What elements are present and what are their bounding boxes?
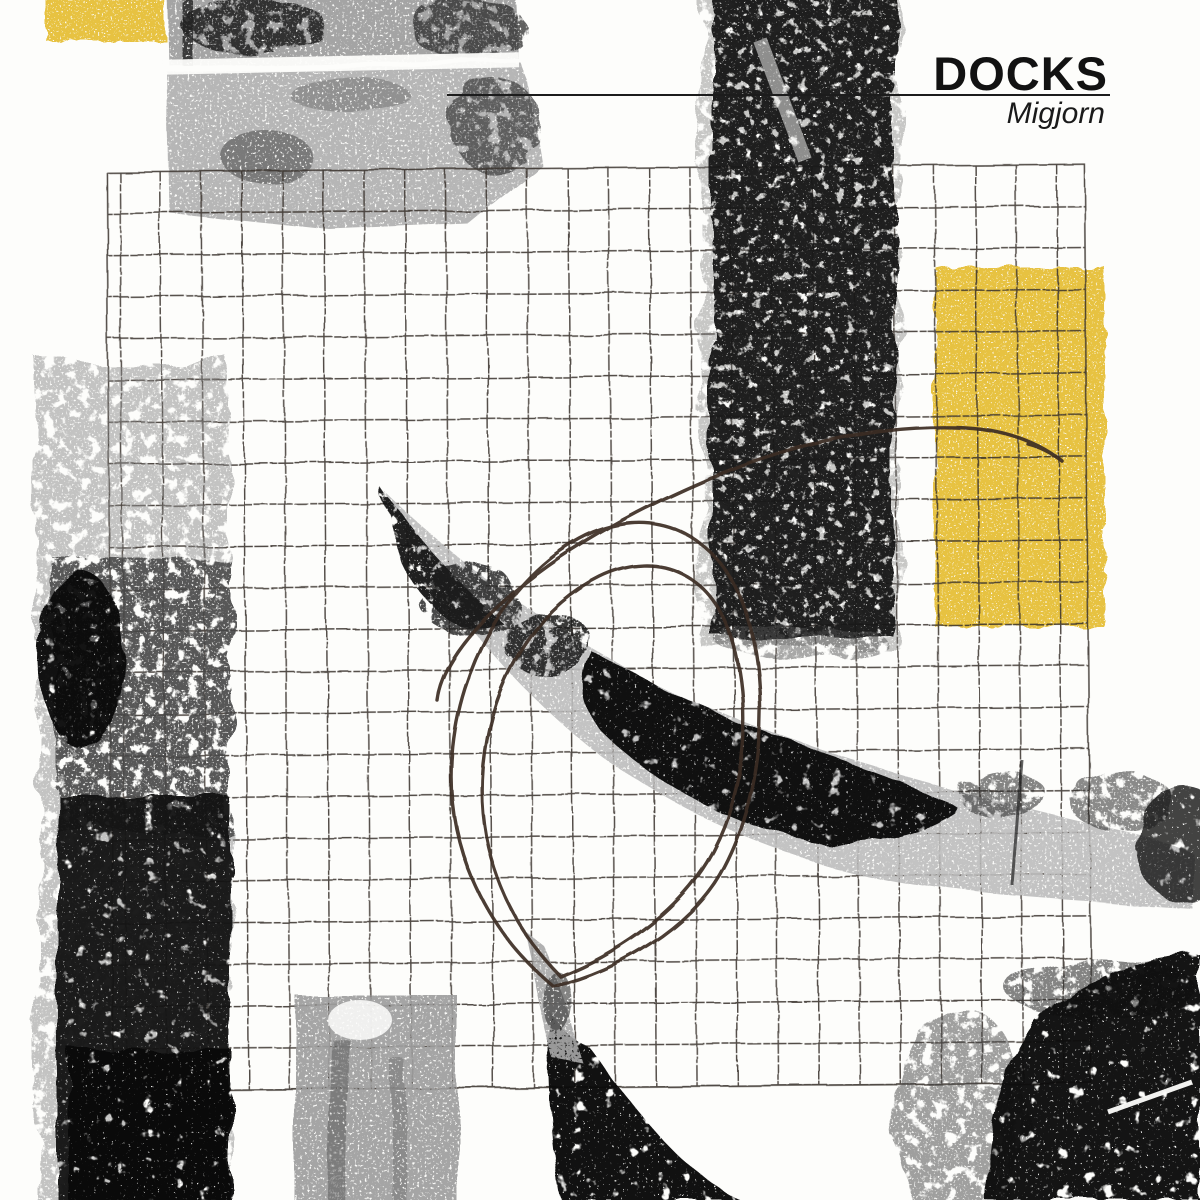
grid-paper — [106, 164, 1091, 1091]
ink-strip-top-right — [700, 0, 900, 658]
collage-artwork — [0, 0, 1200, 1200]
ink-strip-left — [38, 360, 232, 1200]
album-cover: DOCKS Migjorn — [0, 0, 1200, 1200]
artist-name: Migjorn — [1007, 99, 1105, 129]
yellow-block-top-left — [45, 0, 165, 40]
gray-block-bottom — [295, 995, 457, 1200]
album-title: DOCKS — [933, 50, 1108, 97]
